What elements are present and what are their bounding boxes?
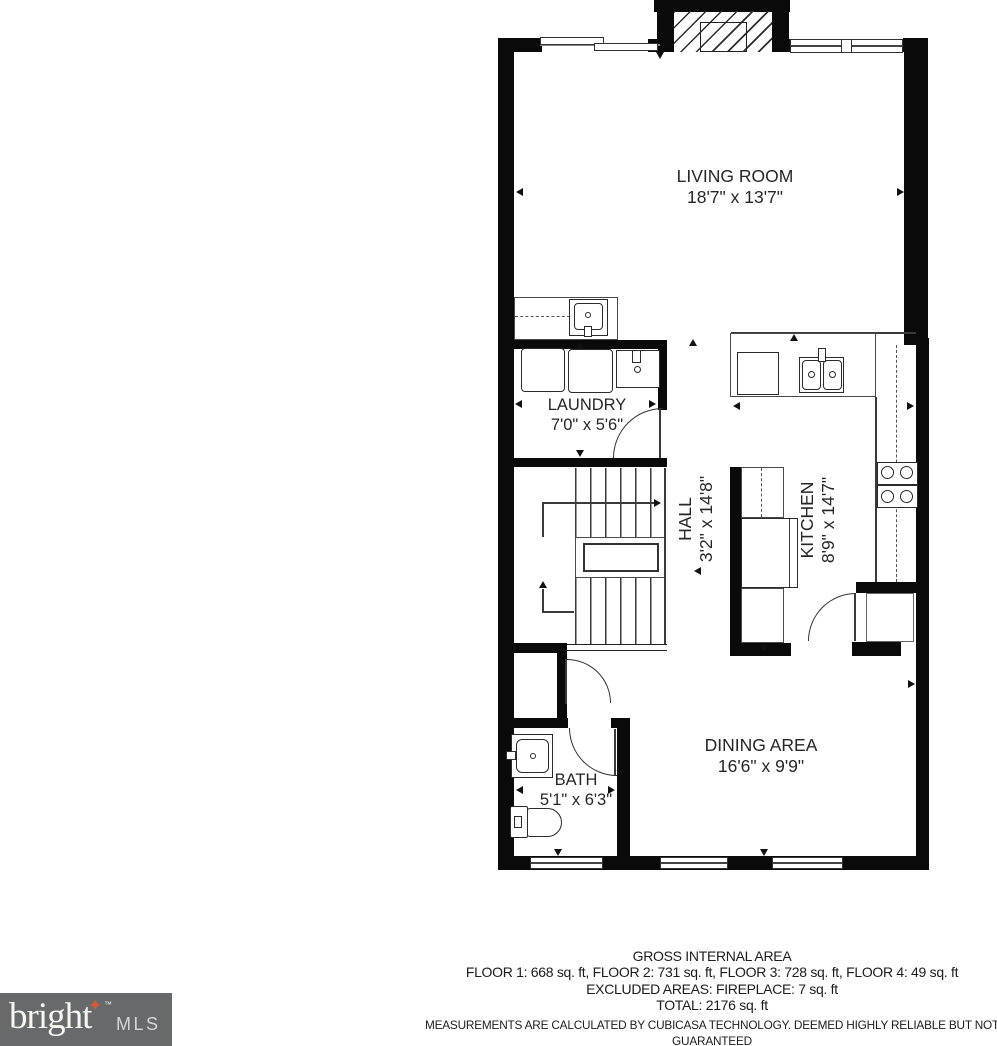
sink-drain-icon [585, 312, 591, 318]
door-arc [808, 593, 856, 641]
window [790, 39, 842, 53]
sink-drain-icon [530, 753, 536, 759]
room-dims: 3'2" x 14'8" [696, 476, 717, 562]
disclaimer-text: MEASUREMENTS ARE CALCULATED BY CUBICASA … [422, 1017, 997, 1046]
cabinet-dash-line [761, 468, 762, 517]
burner-icon [881, 490, 894, 503]
sink-drain-icon [808, 371, 815, 378]
dimension-marker [516, 188, 523, 196]
laundry-label: LAUNDRY 7'0" x 5'6" [548, 395, 627, 435]
door-arc [569, 728, 617, 776]
room-dims: 7'0" x 5'6" [548, 415, 627, 435]
room-dims: 18'7" x 13'7" [677, 187, 794, 208]
refrigerator [737, 352, 779, 395]
room-name: LIVING ROOM [677, 166, 794, 187]
dining-area-label: DINING AREA 16'6" x 9'9" [705, 735, 818, 777]
counter-dash-line [515, 316, 570, 317]
island-counter-edge [789, 519, 790, 587]
stair-direction-line [542, 502, 655, 504]
burner-icon [881, 466, 894, 479]
dimension-marker [576, 450, 584, 457]
window [530, 857, 603, 869]
dimension-marker [790, 334, 798, 341]
arrow-up-icon [539, 581, 547, 588]
dryer [568, 349, 613, 393]
window [851, 39, 903, 53]
wall [904, 38, 928, 345]
door-arc [567, 659, 611, 703]
total-area-text: TOTAL: 2176 sq. ft [422, 997, 997, 1013]
stair-direction-line [542, 502, 544, 537]
dimension-marker [515, 400, 522, 408]
window [594, 43, 658, 51]
window-mullion [841, 39, 852, 53]
stair-edge [664, 468, 666, 645]
stair-direction-line [542, 611, 574, 613]
cased-opening [866, 593, 914, 642]
star-icon: ✦ [88, 996, 102, 1016]
room-dims: 8'9" x 14'7" [818, 477, 839, 563]
dimension-marker [908, 680, 915, 688]
stair-direction-line [542, 589, 544, 613]
wall [916, 338, 929, 870]
floor-areas-text: FLOOR 1: 668 sq. ft, FLOOR 2: 731 sq. ft… [422, 964, 997, 980]
dimension-marker [689, 339, 697, 346]
dimension-marker [760, 849, 768, 856]
logo-suffix: MLS [116, 1014, 161, 1035]
sink-drain-icon [634, 366, 641, 373]
dimension-marker [694, 567, 701, 575]
wall [617, 718, 630, 858]
stair-treads [575, 578, 665, 645]
floor-plan: LIVING ROOM 18'7" x 13'7" LAUNDRY 7'0" x… [0, 0, 997, 1046]
room-name: KITCHEN [797, 477, 818, 563]
dimension-marker [760, 645, 768, 652]
fireplace-firebox [700, 22, 747, 52]
sink-faucet-icon [584, 326, 592, 337]
dimension-marker [576, 342, 584, 349]
wall [856, 582, 929, 593]
washer [521, 348, 565, 392]
area-summary: GROSS INTERNAL AREA FLOOR 1: 668 sq. ft,… [422, 948, 997, 1046]
dimension-marker [907, 402, 914, 410]
island-cabinet [741, 467, 784, 518]
stair-bottom-edge [567, 644, 667, 651]
toilet-bowl [527, 808, 562, 837]
room-dims: 5'1" x 6'3" [540, 790, 612, 810]
wall [852, 642, 901, 656]
logo-wordmark: bright [9, 995, 91, 1038]
hall-label: HALL 3'2" x 14'8" [675, 476, 717, 562]
sink-drain-icon [829, 371, 836, 378]
room-name: BATH [540, 770, 612, 790]
sink-faucet-icon [818, 348, 826, 362]
island-knee-wall [730, 467, 741, 648]
sink-faucet-icon [506, 751, 516, 760]
wall [502, 718, 568, 728]
burner-icon [900, 466, 913, 479]
toilet-flush-icon [514, 816, 522, 828]
room-name: HALL [675, 476, 696, 562]
arrow-right-icon [654, 499, 661, 507]
bath-label: BATH 5'1" x 6'3" [540, 770, 612, 810]
brightmls-logo: bright ✦ ™ MLS [0, 993, 172, 1046]
dimension-marker [516, 786, 523, 794]
room-name: DINING AREA [705, 735, 818, 756]
kitchen-label: KITCHEN 8'9" x 14'7" [797, 477, 839, 563]
dimension-marker [733, 402, 740, 410]
room-dims: 16'6" x 9'9" [705, 756, 818, 777]
wall [505, 458, 667, 467]
trademark-symbol: ™ [104, 1000, 112, 1009]
stair-landing-inner [583, 543, 659, 572]
window [772, 857, 843, 869]
sink-faucet-icon [632, 350, 641, 363]
burner-icon [900, 490, 913, 503]
window [660, 857, 728, 869]
excluded-areas-text: EXCLUDED AREAS: FIREPLACE: 7 sq. ft [422, 981, 997, 997]
room-name: LAUNDRY [548, 395, 627, 415]
living-room-label: LIVING ROOM 18'7" x 13'7" [677, 166, 794, 208]
dimension-marker [649, 400, 656, 408]
island-cabinet [741, 588, 784, 643]
dimension-marker [656, 52, 664, 59]
dimension-marker [554, 849, 562, 856]
gross-internal-area-title: GROSS INTERNAL AREA [422, 948, 997, 964]
dimension-marker [897, 188, 904, 196]
